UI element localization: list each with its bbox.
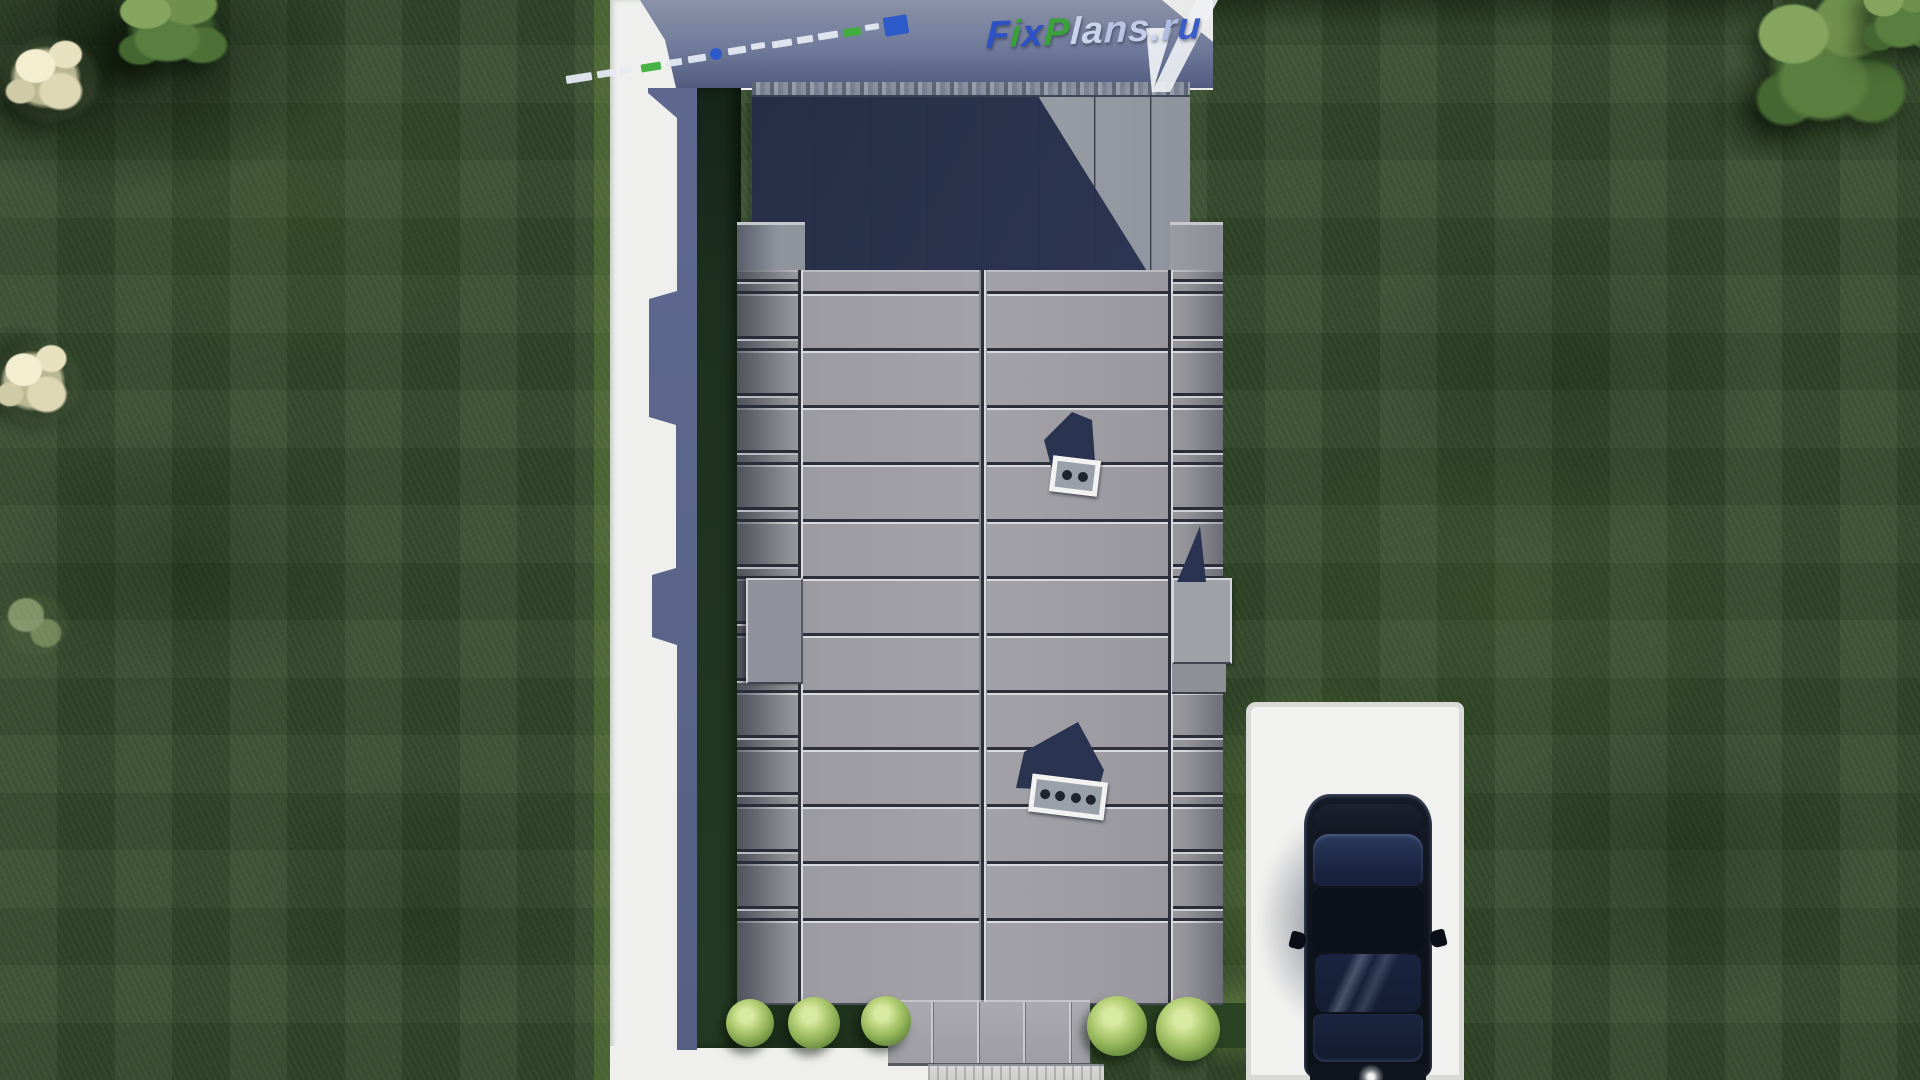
house-roof xyxy=(737,82,1232,1080)
vent-hole xyxy=(1040,789,1051,800)
vent-hole xyxy=(1085,794,1096,805)
porch-steps xyxy=(928,1064,1104,1080)
roof-shoulder-right xyxy=(1170,222,1223,270)
vent-hole xyxy=(1061,469,1072,480)
car-sun-glint xyxy=(1356,1062,1386,1080)
lawn-corner-shade xyxy=(0,0,460,260)
vent-hole xyxy=(1070,792,1081,803)
parked-car xyxy=(1250,780,1464,1080)
roof-main-plane xyxy=(737,270,1223,1003)
car-trunk xyxy=(1314,804,1422,832)
roof-dormer-right xyxy=(1172,578,1232,664)
grass-strip-left xyxy=(697,88,741,1048)
car-body xyxy=(1304,794,1432,1080)
vent-hole xyxy=(1055,790,1066,801)
roof-dormer-left xyxy=(746,578,803,684)
vent-hole xyxy=(1077,471,1088,482)
house-shadow-top xyxy=(615,0,1213,88)
roof-ridge-edge xyxy=(752,82,1190,97)
porch-roof xyxy=(888,1002,1090,1066)
car-windshield xyxy=(1313,1014,1423,1062)
aerial-house-render: FixPlans.ru xyxy=(0,0,1920,1080)
car-sunroof xyxy=(1315,954,1421,1012)
chimney-vent-1 xyxy=(1049,455,1101,497)
car-roof xyxy=(1313,888,1423,952)
roof-dormer-right-step xyxy=(1172,664,1226,694)
car-rear-window xyxy=(1313,834,1423,886)
lawn-top-shade xyxy=(1213,0,1773,30)
roof-shoulder-left xyxy=(737,222,805,270)
roof-seam-center xyxy=(979,270,987,1003)
